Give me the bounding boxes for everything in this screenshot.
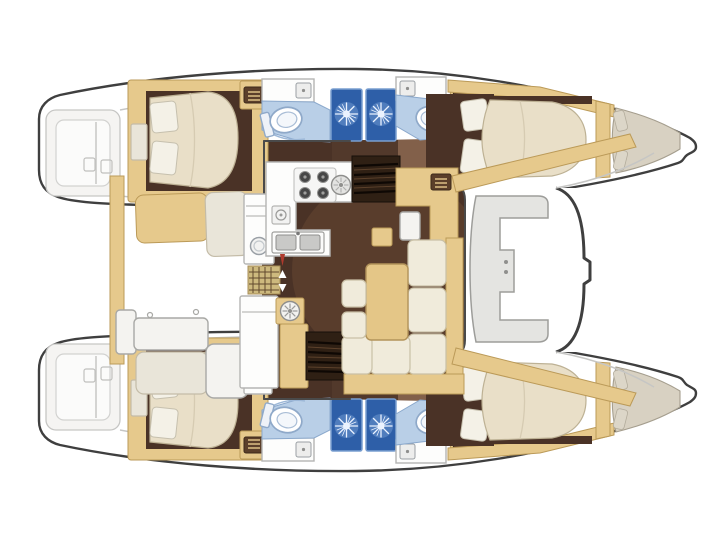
side-bench [116, 310, 136, 354]
cockpit-bench [135, 193, 209, 243]
door-handle-dot [504, 260, 508, 264]
mast-pedestal [276, 298, 304, 324]
porthole-icon [251, 238, 268, 255]
catamaran-floorplan-canvas [0, 0, 720, 540]
cockpit-table [134, 318, 208, 350]
door-handle-dot [504, 270, 508, 274]
round-hob [332, 176, 351, 195]
dining-table [366, 264, 408, 340]
nav-stool [400, 212, 420, 240]
starboard-companionway-steps [306, 332, 346, 380]
shelf [372, 228, 392, 246]
port-companionway-steps [352, 156, 400, 202]
bench-backrest [205, 191, 249, 256]
prep-appliance [272, 206, 290, 224]
double-sink [272, 232, 324, 253]
sofa-base-trim [344, 374, 464, 394]
stool [342, 280, 366, 307]
lower-cabinet [280, 324, 308, 388]
aft-bench [136, 352, 208, 394]
refrigerator-column [240, 296, 278, 388]
floor-grate [248, 266, 280, 294]
stool [342, 312, 366, 338]
stove [294, 168, 336, 202]
floorplan-page [0, 0, 720, 540]
